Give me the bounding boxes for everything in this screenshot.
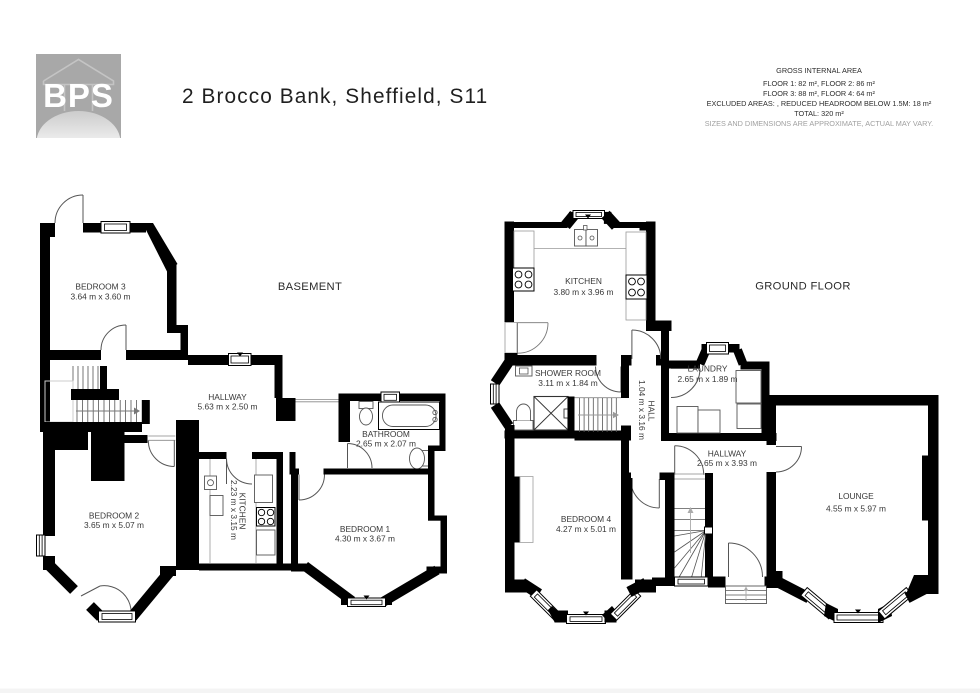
svg-text:BATHROOM: BATHROOM: [362, 429, 410, 439]
svg-text:4.30 m x 3.67 m: 4.30 m x 3.67 m: [335, 534, 395, 544]
svg-text:3.80 m x 3.96 m: 3.80 m x 3.96 m: [553, 287, 613, 297]
svg-text:4.55 m x 5.97 m: 4.55 m x 5.97 m: [826, 504, 886, 514]
svg-text:SIZES AND DIMENSIONS ARE APPRO: SIZES AND DIMENSIONS ARE APPROXIMATE, AC…: [705, 119, 933, 128]
svg-text:BEDROOM 3: BEDROOM 3: [75, 282, 126, 292]
svg-text:2.65 m x 1.89 m: 2.65 m x 1.89 m: [677, 374, 737, 384]
svg-text:KITCHEN: KITCHEN: [565, 276, 602, 286]
svg-text:2.23 m x 3.15 m: 2.23 m x 3.15 m: [229, 480, 239, 540]
svg-text:BASEMENT: BASEMENT: [278, 281, 342, 293]
svg-text:FLOOR 1: 82 m², FLOOR 2: 86 m²: FLOOR 1: 82 m², FLOOR 2: 86 m²: [763, 79, 875, 88]
svg-text:GROUND FLOOR: GROUND FLOOR: [755, 281, 851, 293]
svg-text:BPS: BPS: [43, 77, 114, 114]
svg-text:LAUNDRY: LAUNDRY: [688, 364, 728, 374]
svg-text:HALL: HALL: [647, 401, 657, 422]
svg-text:HALLWAY: HALLWAY: [708, 449, 747, 459]
svg-text:TOTAL: 320 m²: TOTAL: 320 m²: [794, 109, 844, 118]
svg-text:2 Brocco Bank, Sheffield, S11: 2 Brocco Bank, Sheffield, S11: [182, 85, 488, 108]
svg-text:BEDROOM 1: BEDROOM 1: [340, 524, 391, 534]
svg-text:HALLWAY: HALLWAY: [208, 392, 247, 402]
svg-text:BEDROOM 2: BEDROOM 2: [89, 511, 140, 521]
svg-text:2.65 m x 2.07 m: 2.65 m x 2.07 m: [356, 439, 416, 449]
svg-text:3.65 m x 5.07 m: 3.65 m x 5.07 m: [84, 520, 144, 530]
svg-text:EXCLUDED AREAS: , REDUCED HEAD: EXCLUDED AREAS: , REDUCED HEADROOM BELOW…: [707, 99, 932, 108]
svg-text:BEDROOM 4: BEDROOM 4: [561, 514, 612, 524]
svg-text:4.27 m x 5.01 m: 4.27 m x 5.01 m: [556, 524, 616, 534]
svg-text:SHOWER ROOM: SHOWER ROOM: [535, 368, 601, 378]
svg-text:2.65 m x 3.93 m: 2.65 m x 3.93 m: [697, 458, 757, 468]
svg-text:3.11 m x 1.84 m: 3.11 m x 1.84 m: [538, 378, 597, 388]
svg-text:FLOOR 3: 88 m², FLOOR 4: 64 m²: FLOOR 3: 88 m², FLOOR 4: 64 m²: [763, 89, 875, 98]
svg-text:1.04 m x 3.16 m: 1.04 m x 3.16 m: [637, 380, 647, 440]
svg-text:GROSS INTERNAL AREA: GROSS INTERNAL AREA: [776, 66, 862, 75]
svg-text:3.64 m x 3.60 m: 3.64 m x 3.60 m: [70, 292, 130, 302]
svg-text:5.63 m x 2.50 m: 5.63 m x 2.50 m: [197, 402, 257, 412]
svg-text:LOUNGE: LOUNGE: [838, 491, 874, 501]
